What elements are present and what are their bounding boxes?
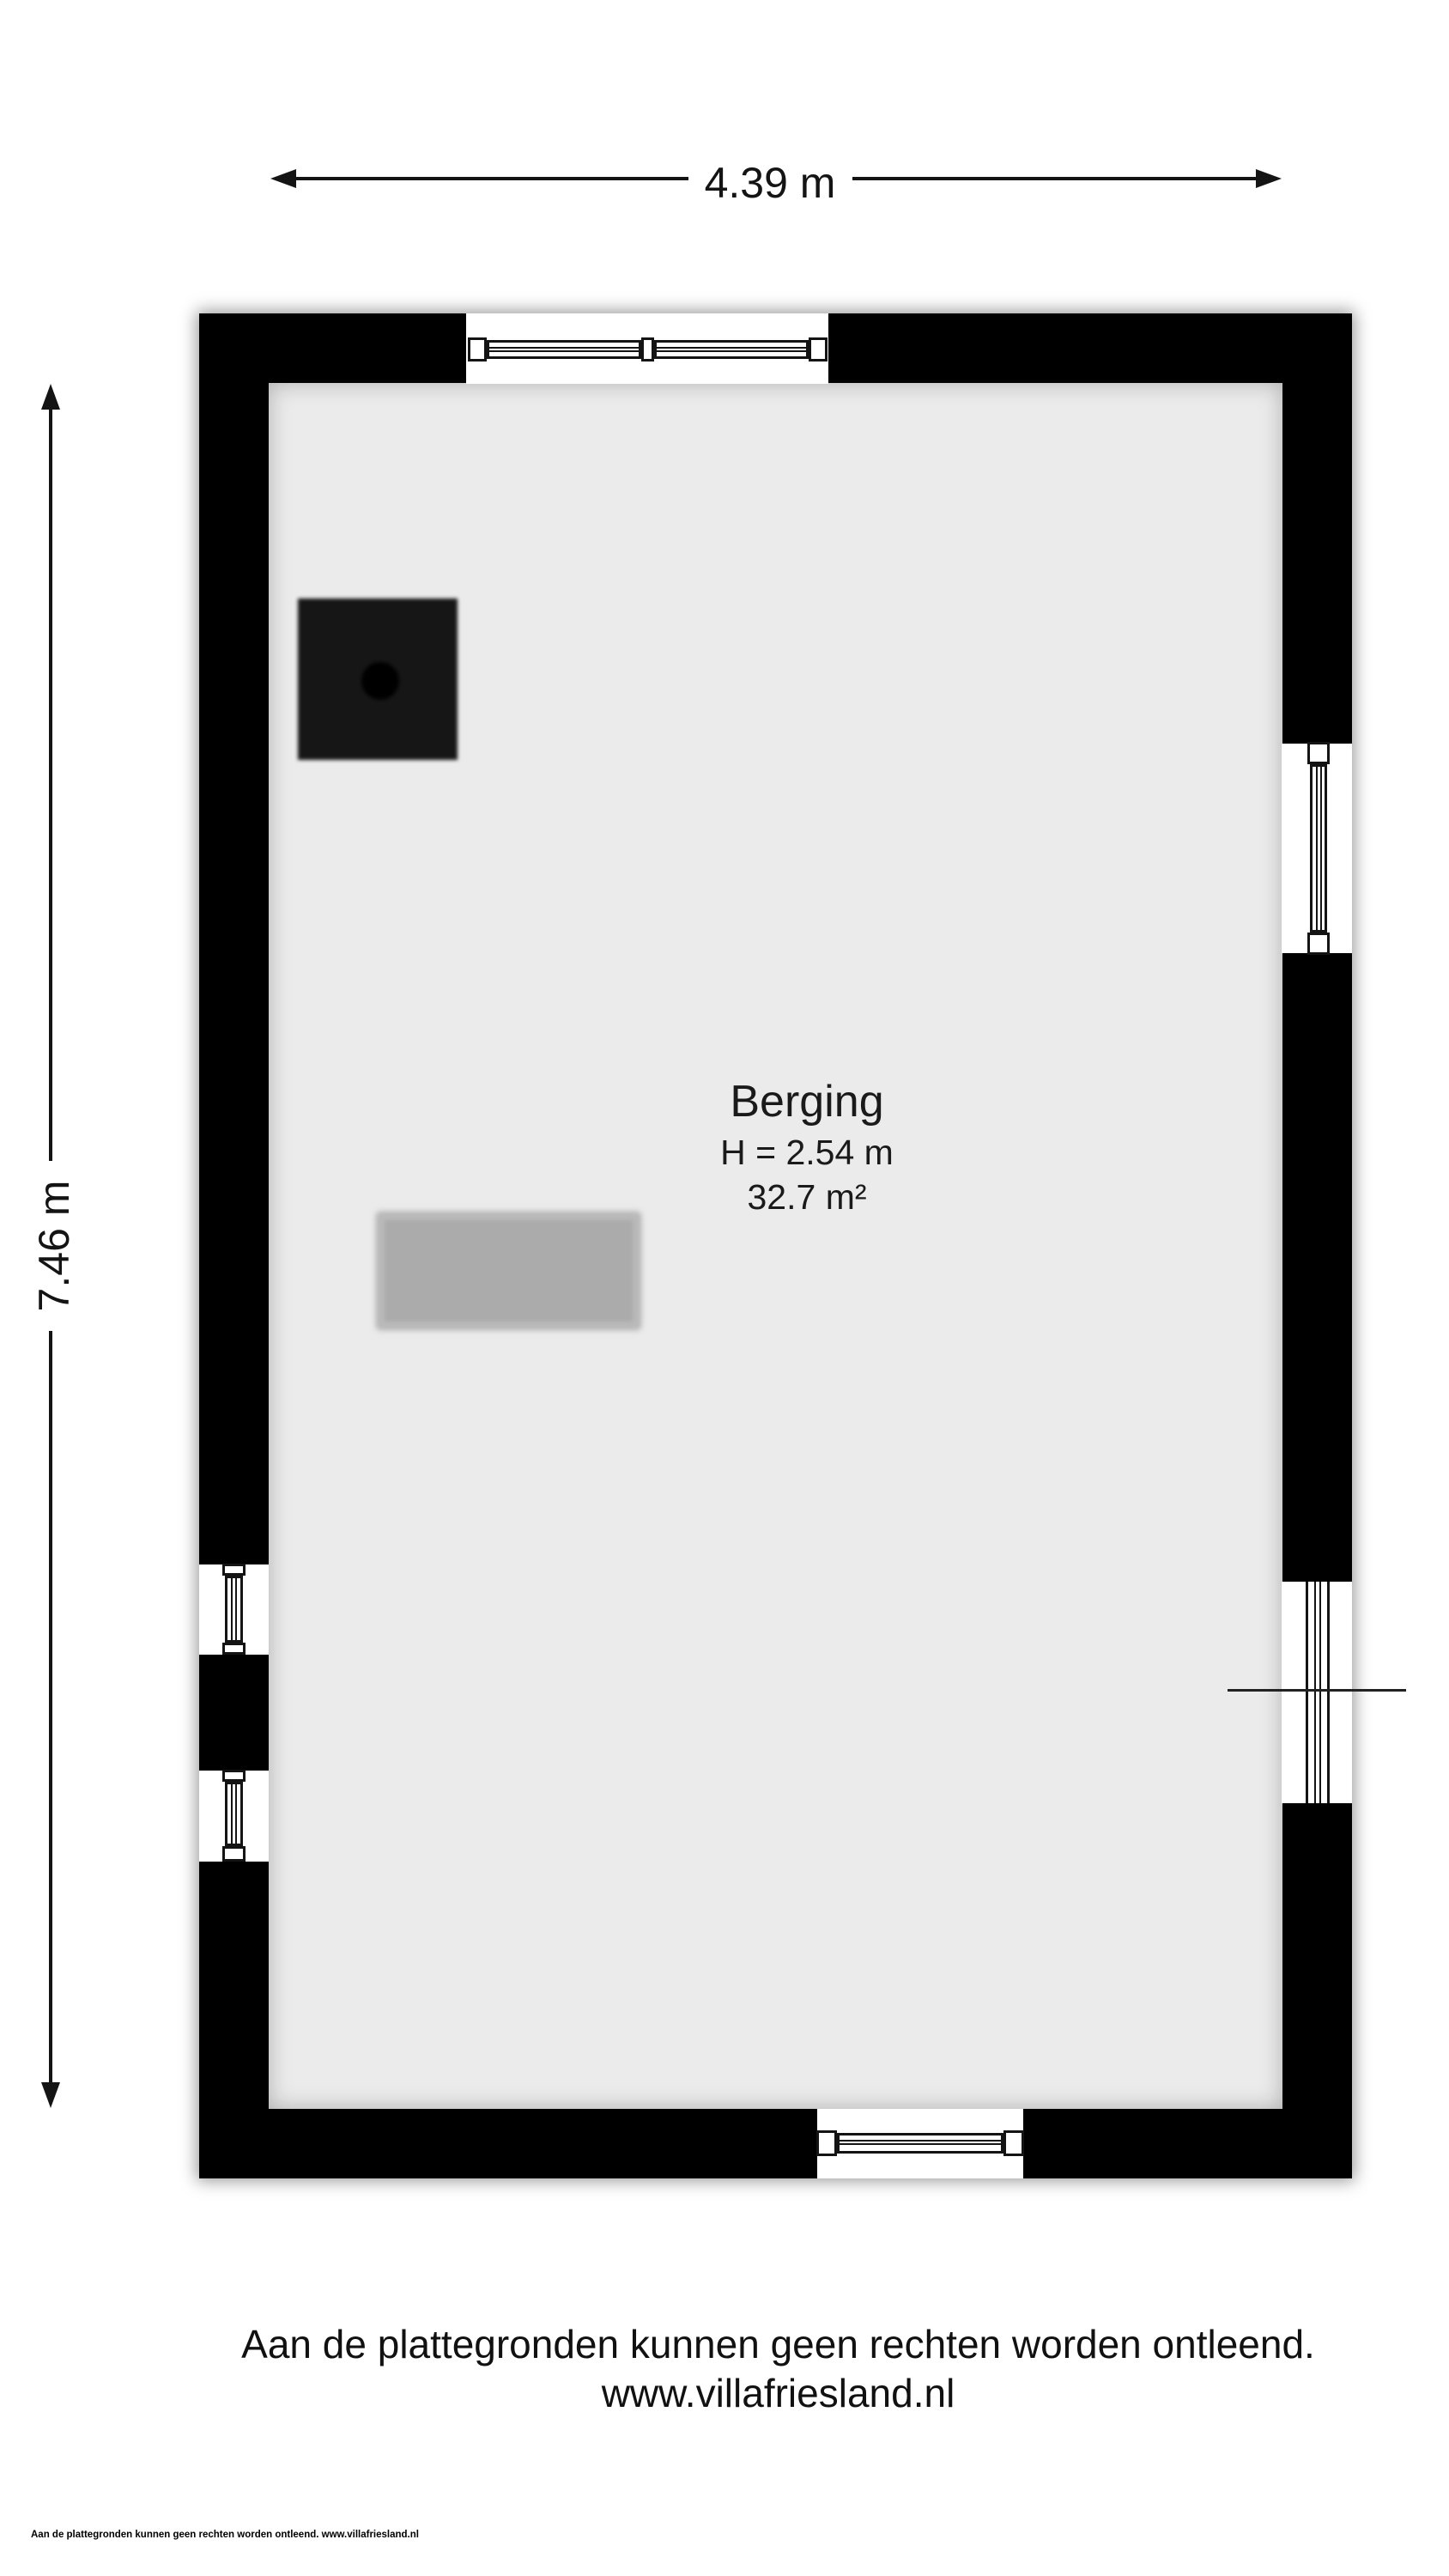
arrowhead-up-icon	[41, 384, 60, 410]
section-marker-line	[1228, 1689, 1406, 1692]
arrowhead-right-icon	[1256, 169, 1282, 188]
arrowhead-left-icon	[270, 169, 296, 188]
dimension-line	[294, 177, 688, 180]
window-cap	[809, 337, 828, 361]
window-sash	[225, 1576, 243, 1643]
stove	[298, 598, 458, 760]
window-cap	[222, 1564, 246, 1576]
room-ceiling-height: H = 2.54 m	[592, 1130, 1022, 1176]
dimension-line	[49, 408, 52, 1161]
dimension-line	[49, 1331, 52, 2084]
room-name: Berging	[592, 1073, 1022, 1130]
table	[378, 1213, 640, 1328]
stove-burner-icon	[361, 662, 399, 700]
room-label: Berging H = 2.54 m 32.7 m²	[592, 1073, 1022, 1218]
disclaimer-line2: www.villafriesland.nl	[107, 2369, 1449, 2418]
window-sash	[1310, 764, 1327, 933]
footer-note: Aan de plattegronden kunnen geen rechten…	[31, 2530, 419, 2540]
window-cap	[222, 1846, 246, 1862]
window-cap	[816, 2130, 837, 2156]
window-cap	[1307, 742, 1330, 764]
window-sash	[654, 340, 809, 359]
dimension-line	[852, 177, 1258, 180]
window-mullion	[641, 337, 654, 361]
floor-plan-page: 4.39 m 7.46 m	[0, 0, 1449, 2576]
dimension-width-label: 4.39 m	[641, 158, 899, 208]
window-cap	[1003, 2130, 1024, 2156]
window-cap	[222, 1643, 246, 1655]
window-cap	[222, 1770, 246, 1782]
window-sash	[487, 340, 641, 359]
window-cap	[1307, 933, 1330, 955]
window-sash	[837, 2133, 1003, 2154]
window-sash	[225, 1782, 243, 1846]
disclaimer-line1: Aan de plattegronden kunnen geen rechten…	[107, 2320, 1449, 2369]
window-sash	[1306, 1582, 1330, 1803]
disclaimer: Aan de plattegronden kunnen geen rechten…	[107, 2320, 1449, 2418]
arrowhead-down-icon	[41, 2082, 60, 2108]
room-area: 32.7 m²	[592, 1176, 1022, 1218]
window-cap	[468, 337, 487, 361]
